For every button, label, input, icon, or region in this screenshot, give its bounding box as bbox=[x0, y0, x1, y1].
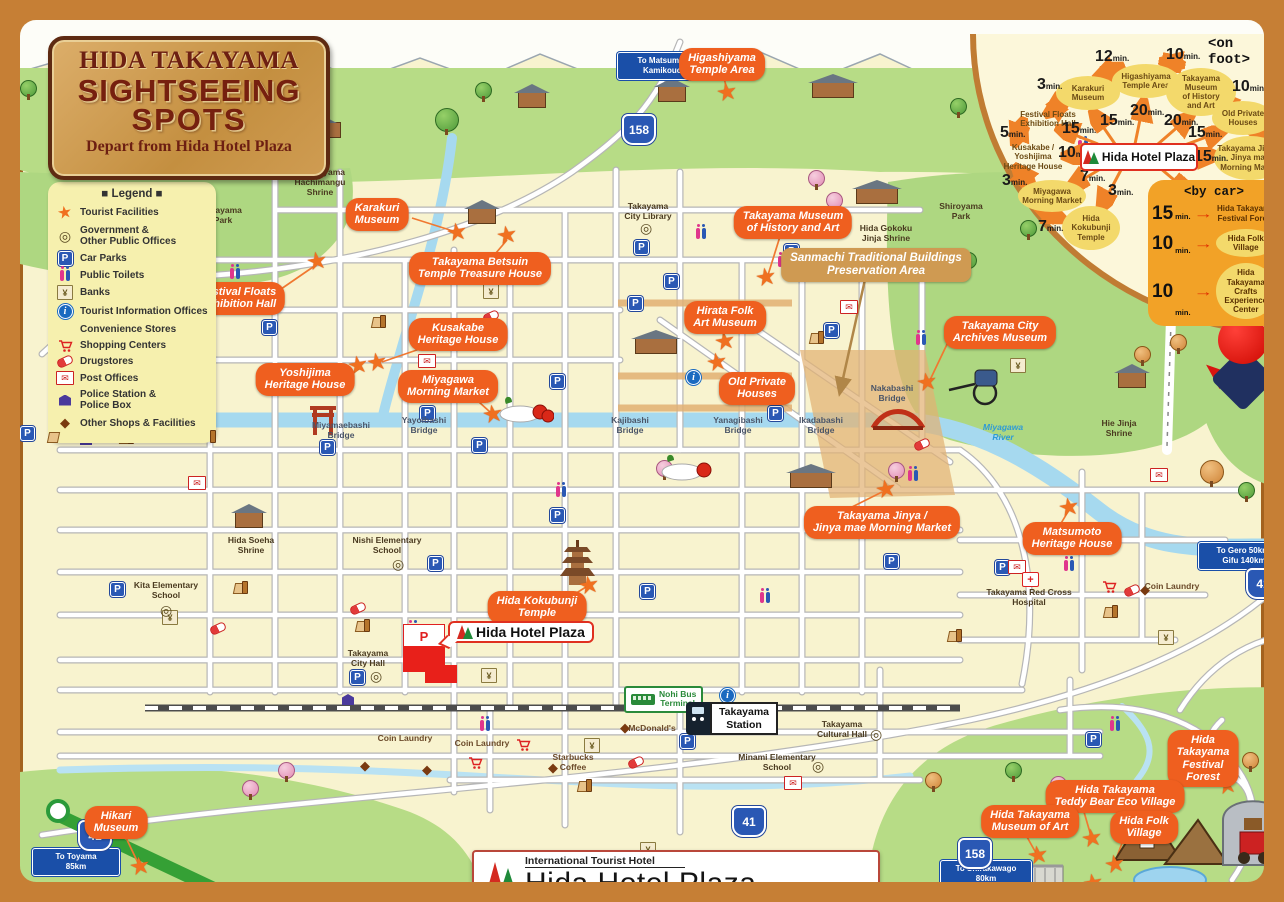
legend-item: Police Station & Police Box bbox=[56, 389, 208, 411]
legend-item: ✉Post Offices bbox=[56, 371, 208, 385]
takayama-station-sign: Takayama Station bbox=[686, 702, 778, 735]
legend-item: ◆Other Shops & Facilities bbox=[56, 415, 208, 431]
government-office-icon: ◎ bbox=[59, 228, 71, 245]
legend-label: Public Toilets bbox=[80, 270, 144, 281]
walk-time: 3min. bbox=[1037, 76, 1062, 94]
by-car-item: 10min. → Hida Takayama Crafts Experience… bbox=[1152, 263, 1264, 319]
title-line1: HIDA TAKAYAMA bbox=[52, 47, 326, 75]
walk-time: 5min. bbox=[1000, 124, 1025, 142]
by-car-item: 10min. → Hida Folk Village bbox=[1152, 229, 1264, 257]
legend-item: ¥Banks bbox=[56, 285, 208, 300]
legend-label: Banks bbox=[80, 287, 110, 298]
walk-time: 20min. bbox=[1130, 102, 1164, 120]
title-line2: SIGHTSEEING bbox=[52, 76, 326, 105]
hotel-tagline: International Tourist Hotel bbox=[525, 855, 685, 868]
onfoot-hub-label: Hida Hotel Plaza bbox=[1102, 150, 1195, 164]
legend-item: Public Toilets bbox=[56, 270, 208, 281]
shopping-center-icon bbox=[58, 339, 73, 352]
legend-item: ★Tourist Facilities bbox=[56, 204, 208, 221]
walk-time: 10min. bbox=[1166, 46, 1200, 64]
by-car-item: 15min. → Hida Takayama Festival Forest bbox=[1152, 204, 1264, 223]
drive-time-unit: min. bbox=[1175, 246, 1190, 255]
hotel-name: Hida Hotel Plaza bbox=[525, 869, 878, 882]
train-icon bbox=[686, 702, 710, 735]
drive-time: 10 bbox=[1152, 234, 1173, 253]
legend-label: Tourist Facilities bbox=[80, 207, 159, 218]
hotel-logo bbox=[1083, 150, 1099, 164]
legend-label: Police Station & Police Box bbox=[80, 389, 156, 411]
by-car-destination: Hida Folk Village bbox=[1216, 229, 1264, 257]
drive-time-unit: min. bbox=[1175, 308, 1190, 317]
legend-label: Post Offices bbox=[80, 373, 138, 384]
hida-hotel-plaza-map-label: Hida Hotel Plaza bbox=[448, 621, 594, 643]
other-shops-icon: ◆ bbox=[60, 415, 70, 431]
walk-time: 3min. bbox=[1108, 182, 1133, 200]
tourist-facility-star-icon: ★ bbox=[56, 203, 74, 222]
walk-time: 15min. bbox=[1062, 120, 1096, 138]
sightseeing-map: <on foot> Karakuri Museum Higashiyama Te… bbox=[0, 0, 1284, 902]
onfoot-node-karakuri: Karakuri Museum bbox=[1056, 76, 1120, 110]
by-car-heading: <by car> bbox=[1152, 185, 1264, 199]
legend-item: PCar Parks bbox=[56, 251, 208, 266]
hotel-name: Hida Hotel Plaza bbox=[476, 624, 585, 640]
walk-time: 15min. bbox=[1188, 124, 1222, 142]
car-park-icon: P bbox=[58, 251, 73, 266]
title-subtitle: Depart from Hida Hotel Plaza bbox=[52, 138, 326, 156]
bus-icon bbox=[631, 694, 655, 705]
station-label: Takayama Station bbox=[710, 702, 778, 735]
walk-time: 10min. bbox=[1232, 78, 1264, 96]
legend-label: Car Parks bbox=[80, 253, 127, 264]
walk-time: 15min. bbox=[1194, 148, 1228, 166]
bank-icon: ¥ bbox=[57, 285, 73, 300]
convenience-store-icon bbox=[58, 323, 72, 335]
public-toilet-icon bbox=[60, 270, 70, 281]
hotel-logo bbox=[457, 625, 473, 639]
legend-heading: ■ Legend ■ bbox=[56, 188, 208, 200]
walk-time: 7min. bbox=[1038, 218, 1063, 236]
onfoot-node-kokubunji: Hida Kokubunji Temple bbox=[1062, 206, 1120, 250]
walk-time: 3min. bbox=[1002, 172, 1027, 190]
by-car-panel: <by car> 15min. → Hida Takayama Festival… bbox=[1148, 180, 1264, 326]
legend-label: Other Shops & Facilities bbox=[80, 418, 196, 429]
legend-label: Shopping Centers bbox=[80, 340, 166, 351]
by-car-destination: Hida Takayama Festival Forest bbox=[1216, 204, 1264, 222]
drive-time: 15 bbox=[1152, 204, 1173, 223]
tourist-information-icon: i bbox=[58, 304, 73, 319]
legend-item: Convenience Stores bbox=[56, 323, 208, 335]
onfoot-node-miyagawa: Miyagawa Morning Market bbox=[1018, 180, 1086, 212]
legend-item: Shopping Centers bbox=[56, 339, 208, 352]
arrow-right-icon: → bbox=[1193, 206, 1213, 221]
legend-label: Tourist Information Offices bbox=[80, 306, 208, 317]
legend-item: iTourist Information Offices bbox=[56, 304, 208, 319]
title-line3: SPOTS bbox=[52, 105, 326, 134]
hotel-logo bbox=[484, 862, 519, 882]
hotel-banner: International Tourist Hotel Hida Hotel P… bbox=[472, 850, 880, 882]
legend-panel: ■ Legend ■ ★Tourist Facilities ◎Governme… bbox=[48, 182, 216, 443]
drive-time: 10 bbox=[1152, 282, 1173, 301]
drugstore-icon bbox=[56, 354, 74, 369]
walk-time: 12min. bbox=[1095, 48, 1129, 66]
title-sign: HIDA TAKAYAMA SIGHTSEEING SPOTS Depart f… bbox=[48, 36, 330, 180]
legend-label: Government & Other Public Offices bbox=[80, 225, 176, 247]
map-canvas: <on foot> Karakuri Museum Higashiyama Te… bbox=[20, 20, 1264, 882]
on-foot-heading: <on foot> bbox=[1208, 36, 1264, 68]
legend-item: ◎Government & Other Public Offices bbox=[56, 225, 208, 247]
arrow-right-icon: → bbox=[1193, 236, 1213, 251]
arrow-right-icon: → bbox=[1193, 284, 1213, 299]
legend-label: Convenience Stores bbox=[80, 324, 176, 335]
post-office-icon: ✉ bbox=[56, 371, 74, 385]
by-car-destination: Hida Takayama Crafts Experience Center bbox=[1216, 263, 1264, 319]
police-station-icon bbox=[59, 395, 71, 406]
legend-label: Drugstores bbox=[80, 356, 133, 367]
drive-time-unit: min. bbox=[1175, 212, 1190, 221]
legend-item: Drugstores bbox=[56, 356, 208, 367]
onfoot-hub-hida-hotel-plaza: Hida Hotel Plaza bbox=[1080, 143, 1198, 171]
